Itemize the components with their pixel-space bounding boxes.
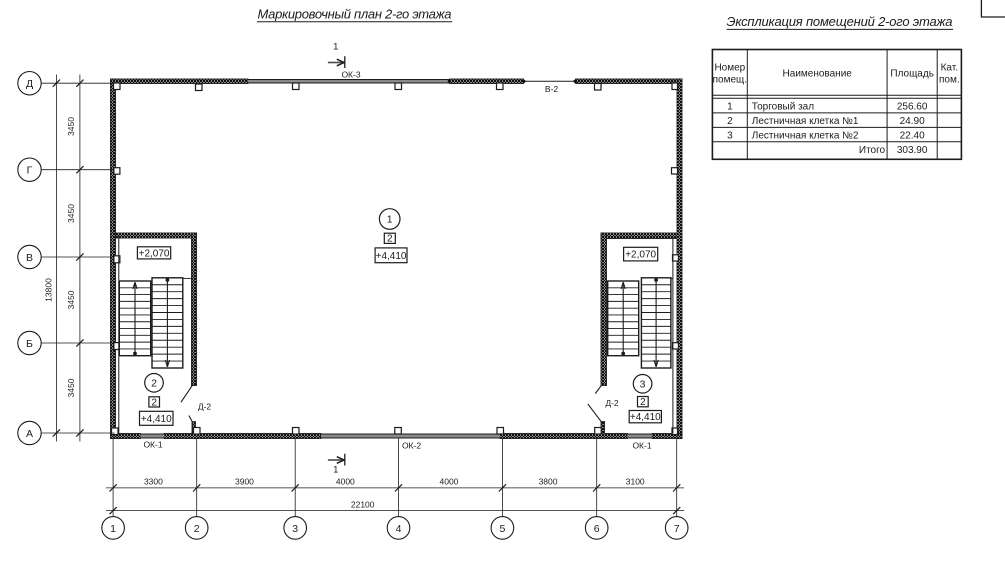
svg-text:+4,410: +4,410 xyxy=(630,412,661,423)
svg-text:Д-2: Д-2 xyxy=(198,402,212,412)
svg-text:Кат.: Кат. xyxy=(941,63,958,74)
svg-text:Итого: Итого xyxy=(859,145,886,156)
svg-text:ОК-2: ОК-2 xyxy=(402,441,421,451)
svg-text:пом.: пом. xyxy=(939,75,960,86)
svg-text:3900: 3900 xyxy=(235,476,254,486)
svg-text:Наименование: Наименование xyxy=(783,69,853,80)
svg-text:Д: Д xyxy=(26,78,33,90)
svg-text:3450: 3450 xyxy=(66,204,76,223)
svg-text:1: 1 xyxy=(333,465,338,476)
svg-text:Б: Б xyxy=(26,338,33,350)
svg-text:3450: 3450 xyxy=(66,378,76,397)
svg-text:Торговый зал: Торговый зал xyxy=(752,102,814,113)
svg-text:2: 2 xyxy=(387,234,393,245)
svg-text:+4,410: +4,410 xyxy=(141,414,172,425)
svg-text:Площадь: Площадь xyxy=(890,69,934,80)
svg-text:А: А xyxy=(26,428,33,440)
svg-text:5: 5 xyxy=(499,523,505,535)
svg-text:1: 1 xyxy=(333,42,338,53)
svg-text:3: 3 xyxy=(292,523,298,535)
svg-text:303.90: 303.90 xyxy=(897,145,928,156)
svg-text:Экспликация помещений 2-ого эт: Экспликация помещений 2-ого этажа xyxy=(727,14,953,29)
svg-text:2: 2 xyxy=(151,378,157,390)
svg-text:4: 4 xyxy=(396,523,402,535)
svg-text:3: 3 xyxy=(727,131,733,142)
svg-text:3450: 3450 xyxy=(66,117,76,136)
svg-text:2: 2 xyxy=(194,523,200,535)
svg-text:1: 1 xyxy=(387,214,393,226)
svg-text:22100: 22100 xyxy=(351,499,375,509)
svg-text:В: В xyxy=(26,252,33,264)
svg-text:256.60: 256.60 xyxy=(897,102,928,113)
svg-text:22.40: 22.40 xyxy=(900,131,925,142)
svg-text:Лестничная клетка №2: Лестничная клетка №2 xyxy=(752,131,859,142)
svg-text:3800: 3800 xyxy=(539,476,558,486)
svg-text:В-2: В-2 xyxy=(545,84,559,94)
svg-text:13800: 13800 xyxy=(43,278,53,302)
svg-text:3100: 3100 xyxy=(626,476,645,486)
svg-text:помещ.: помещ. xyxy=(713,75,747,86)
svg-text:4000: 4000 xyxy=(336,476,355,486)
svg-text:2: 2 xyxy=(727,116,733,127)
svg-text:2: 2 xyxy=(640,397,646,408)
svg-text:+2,070: +2,070 xyxy=(139,248,170,259)
svg-text:ОК-1: ОК-1 xyxy=(143,440,162,450)
svg-text:3300: 3300 xyxy=(144,476,163,486)
svg-text:3450: 3450 xyxy=(66,290,76,309)
svg-text:+4,410: +4,410 xyxy=(376,251,407,262)
svg-text:Маркировочный план 2-го этажа: Маркировочный план 2-го этажа xyxy=(258,7,452,22)
svg-text:Г: Г xyxy=(27,165,33,177)
svg-text:1: 1 xyxy=(727,102,733,113)
svg-text:7: 7 xyxy=(674,523,680,535)
svg-text:24.90: 24.90 xyxy=(900,116,925,127)
svg-text:Лестничная клетка №1: Лестничная клетка №1 xyxy=(752,116,859,127)
svg-text:6: 6 xyxy=(594,523,600,535)
svg-text:Д-2: Д-2 xyxy=(605,398,619,408)
svg-text:+2,070: +2,070 xyxy=(625,250,656,261)
svg-text:ОК-1: ОК-1 xyxy=(632,441,651,451)
svg-text:Номер: Номер xyxy=(714,63,745,74)
svg-text:2: 2 xyxy=(151,397,157,408)
svg-text:3: 3 xyxy=(640,379,646,391)
svg-text:1: 1 xyxy=(110,523,116,535)
svg-text:4000: 4000 xyxy=(439,476,458,486)
svg-text:ОК-3: ОК-3 xyxy=(341,70,360,80)
